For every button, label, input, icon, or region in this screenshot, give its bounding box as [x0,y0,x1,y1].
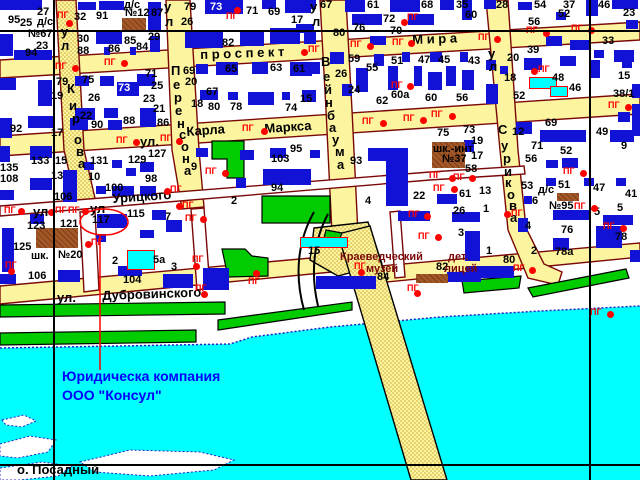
house-number-label: 2 [231,196,237,207]
house-number-label: 86 [108,44,120,55]
house-number-label: 49 [596,127,608,138]
building[interactable] [0,152,10,162]
house-number-label: 95 [8,15,20,26]
fire-hydrant-label: ПГ [571,24,583,33]
building[interactable] [632,104,640,136]
fire-hydrant-label: ПГ [242,124,254,133]
fire-hydrant-label: ПГ [407,13,419,22]
building[interactable] [248,92,274,105]
building[interactable] [126,168,136,176]
building[interactable] [58,270,80,282]
fire-hydrant-label: ПГ [453,173,465,182]
building[interactable] [546,160,558,168]
house-number-label: 5а [153,255,165,266]
fire-hydrant-label: ПГ [195,284,207,293]
fire-hydrant-label: ПГ [4,206,16,215]
building[interactable] [518,2,532,10]
fire-hydrant-dot[interactable] [66,20,73,27]
search-result-annotation: Юридическа компания ООО "Консул" [62,369,220,407]
fire-hydrant-label: ПГ [590,308,602,317]
house-number-label: 106 [28,271,46,282]
fire-hydrant-label: ПГ [205,167,217,176]
fire-hydrant-label: ПГ [431,110,443,119]
house-number-label: 68 [421,0,433,11]
building[interactable] [203,268,229,290]
building[interactable] [104,108,118,118]
house-number-label: 22 [413,191,425,202]
house-number-label: 82 [222,38,234,49]
house-number-label: 61 [367,0,379,11]
house-number-label: 13 [51,171,63,182]
house-number-label: 39 [527,45,539,56]
house-number-label: 79 [184,2,196,13]
house-number-label: 129 [128,155,146,166]
fire-hydrant-label: ПГ [408,210,420,219]
house-number-label: 121 [60,219,78,230]
house-number-label: 80 [333,28,345,39]
fire-hydrant-label: ПГ [116,136,128,145]
house-number-label: 74 [285,103,297,114]
house-number-label: 94 [271,183,283,194]
house-number-label: 26 [335,69,347,80]
fire-hydrant-dot[interactable] [420,117,427,124]
building[interactable] [282,92,290,100]
house-number-label: №12 [125,8,150,19]
house-number-label: 5 [617,203,623,214]
building[interactable] [236,178,246,188]
house-number-label: 60 [465,10,477,21]
fire-hydrant-dot[interactable] [367,43,374,50]
building[interactable] [196,148,208,157]
fire-hydrant-label: ПГ [513,264,525,273]
house-number-label: 71 [531,141,543,152]
street-label: Маркса [264,119,312,135]
fire-hydrant-dot[interactable] [176,138,183,145]
house-number-label: 15 [300,94,312,105]
house-number-label: 2 [531,246,537,257]
house-number-label: 60а [391,90,409,101]
house-number-label: №20 [58,250,83,261]
street-label: П [171,64,180,77]
fire-hydrant-dot[interactable] [588,27,595,34]
building[interactable] [586,0,598,16]
house-number-label: 72 [383,14,395,25]
street-label: р [72,112,80,125]
house-number-label: 58 [465,164,477,175]
building[interactable] [440,0,454,10]
fire-hydrant-dot[interactable] [408,40,415,47]
house-number-label: 38/1 [613,89,634,100]
house-number-label: 12 [512,127,524,138]
house-number-label: №95 [549,201,574,212]
fire-hydrant-label: ПГ [574,202,586,211]
building[interactable] [386,160,408,206]
building[interactable] [524,196,532,204]
house-number-label: 88 [77,46,89,57]
building[interactable] [446,66,456,86]
building[interactable] [108,120,122,130]
house-number-label: 108 [0,174,18,185]
house-number-label: 1 [483,204,489,215]
fire-hydrant-dot[interactable] [543,30,550,37]
building[interactable] [30,178,52,190]
fire-hydrant-label: ПГ [192,255,204,264]
street-label: п р о с п е к т [200,45,285,61]
building[interactable] [78,2,96,10]
house-number-label: 26 [88,93,100,104]
house-number-label: шк. [31,251,49,262]
house-number-label: 25 [151,81,163,92]
house-number-label: лицей [444,264,477,275]
house-number-label: 56 [456,93,468,104]
house-number-label: 103 [271,154,289,165]
house-number-label: музей [366,264,398,275]
fire-hydrant-dot[interactable] [529,267,536,274]
building[interactable] [484,0,496,9]
highlighted-building[interactable] [550,86,568,97]
school-building[interactable] [416,274,448,283]
fire-hydrant-label: ПГ [55,206,67,215]
street-label: ул. [57,291,76,304]
house-number-label: 75 [437,128,449,139]
house-number-label: 123 [27,221,45,232]
house-number-label: 52 [558,9,570,20]
fire-hydrant-label: ПГ [5,261,17,270]
fire-hydrant-dot[interactable] [591,205,598,212]
building[interactable] [616,178,626,186]
house-number-label: 65 [225,64,237,75]
house-number-label: 79 [56,77,68,88]
house-number-label: д/с [538,185,554,196]
building[interactable] [140,115,156,127]
school-building[interactable] [122,18,146,30]
building[interactable] [228,92,238,100]
house-number-label: 20 [185,77,197,88]
building[interactable] [0,0,42,10]
house-number-label: 17 [51,128,63,139]
fire-hydrant-dot[interactable] [504,211,511,218]
building[interactable] [112,160,122,168]
building[interactable] [316,276,376,289]
house-number-label: 69 [545,118,557,129]
building[interactable] [590,60,600,78]
house-number-label: 24 [348,85,360,96]
fire-hydrant-label: ПГ [308,45,320,54]
company-name-line1: Юридическа компания [62,369,220,383]
house-number-label: 32 [74,12,86,23]
fire-hydrant-dot[interactable] [121,60,128,67]
street-label: а [78,157,85,170]
fire-hydrant-dot[interactable] [261,128,268,135]
house-number-label: 30 [77,34,89,45]
building[interactable] [570,40,590,50]
fire-hydrant-dot[interactable] [531,68,538,75]
house-number-label: №67 [28,29,53,40]
street-label: а [337,158,344,171]
street-label: л [165,15,173,28]
house-number-label: 47 [593,183,605,194]
house-number-label: 23 [36,41,48,52]
house-number-label: 133 [31,156,49,167]
building[interactable] [460,52,468,62]
fire-hydrant-dot[interactable] [469,175,476,182]
house-number-label: 98 [145,174,157,185]
fire-hydrant-dot[interactable] [607,311,614,318]
building[interactable] [546,36,562,46]
fire-hydrant-label: ПГ [350,40,362,49]
fire-hydrant-label: ПГ [563,167,575,176]
house-number-label: 67 [320,0,332,11]
house-number-label: 41 [625,189,637,200]
house-number-label: 100 [105,183,123,194]
house-number-label: 28 [496,0,508,11]
fire-hydrant-label: ПГ [403,114,415,123]
house-number-label: 4 [525,221,531,232]
house-number-label: 26 [181,17,193,28]
building[interactable] [626,20,638,29]
park-area [262,196,330,223]
fire-hydrant-label: ПГ [91,238,103,247]
building[interactable] [437,194,457,204]
building[interactable] [345,0,365,12]
house-number-label: 51 [391,56,403,67]
building[interactable] [185,30,223,48]
building[interactable] [594,50,604,58]
house-number-label: 80 [208,102,220,113]
house-number-label: 19 [51,91,63,102]
house-number-label: 26 [453,206,465,217]
building[interactable] [462,70,474,90]
street-label: С [498,123,507,136]
house-number-label: 95 [290,144,302,155]
house-number-label: 104 [123,275,141,286]
building[interactable] [100,76,114,86]
map-canvas[interactable]: Юридическа компания ООО "Консул" о. Поса… [0,0,640,480]
building[interactable] [0,190,14,200]
fire-hydrant-dot[interactable] [494,36,501,43]
house-number-label: 2 [112,256,118,267]
house-number-label: 1 [486,246,492,257]
house-number-label: 70 [390,26,402,37]
house-number-label: 61 [459,189,471,200]
building[interactable] [540,130,586,142]
street-label: л [489,60,497,73]
island-label: о. Посадный [17,463,99,476]
building[interactable] [252,62,268,74]
house-number-label: 93 [350,156,362,167]
street-label: у [61,25,68,38]
building[interactable] [196,64,208,74]
street-label: л [312,15,320,28]
building[interactable] [240,150,254,160]
fire-hydrant-label: ПГ [526,26,538,35]
house-number-label: 33 [602,36,614,47]
house-number-label: 63 [270,63,282,74]
street-label: М и р а [412,31,457,46]
house-number-label: 3 [171,262,177,273]
building[interactable] [622,58,632,68]
house-number-label: 9 [621,141,627,152]
building[interactable] [390,0,420,12]
fire-hydrant-dot[interactable] [48,209,55,216]
house-number-label: 75 [82,75,94,86]
fire-hydrant-dot[interactable] [451,186,458,193]
house-number-label: 52 [560,146,572,157]
house-number-label: 91 [96,11,108,22]
house-number-label: 3 [458,228,464,239]
fire-hydrant-dot[interactable] [580,170,587,177]
park-area [0,330,196,345]
house-number-label: 55 [366,63,378,74]
building[interactable] [330,52,344,64]
street-label: Карла [186,122,225,138]
house-number-label: 23 [623,8,635,19]
fire-hydrant-label: ПГ [104,58,116,67]
house-number-label: 9 [191,162,197,173]
house-number-label: 54 [534,0,546,11]
house-number-label: 131 [90,156,108,167]
house-number-label: 73 [118,83,130,94]
house-number-label: Краеведческий [340,252,423,263]
building[interactable] [428,72,442,90]
fire-hydrant-label: ПГ [226,12,238,21]
park-area [0,302,225,317]
building[interactable] [486,84,498,104]
house-number-label: 76 [561,225,573,236]
building[interactable] [152,210,166,220]
fire-hydrant-label: ПГ [429,171,441,180]
fire-hydrant-dot[interactable] [193,263,200,270]
fire-hydrant-label: ПГ [248,277,260,286]
building[interactable] [310,62,320,74]
fire-hydrant-label: ПГ [511,209,523,218]
fire-hydrant-dot[interactable] [449,113,456,120]
fire-hydrant-dot[interactable] [625,104,632,111]
house-number-label: 84 [136,42,148,53]
house-number-label: 17 [291,15,303,26]
house-number-label: 67 [206,87,218,98]
house-number-label: 87 [151,8,163,19]
building[interactable] [310,150,320,158]
house-number-label: д/с [37,17,53,28]
house-number-label: 15 [618,71,630,82]
fire-hydrant-label: ПГ [160,134,172,143]
fire-hydrant-dot[interactable] [72,65,79,72]
fire-hydrant-dot[interactable] [380,120,387,127]
house-number-label: 15 [55,156,67,167]
fire-hydrant-dot[interactable] [435,234,442,241]
fire-hydrant-label: ПГ [433,184,445,193]
fire-hydrant-label: ПГ [538,65,550,74]
house-number-label: 46 [598,0,610,11]
fire-hydrant-label: ПГ [57,11,69,20]
house-number-label: 94 [25,48,37,59]
fire-hydrant-dot[interactable] [424,213,431,220]
house-number-label: 76 [353,23,365,34]
building[interactable] [140,230,154,238]
house-number-label: 90 [91,120,103,131]
house-number-label: 46 [569,83,581,94]
house-number-label: 62 [376,96,388,107]
fire-hydrant-dot[interactable] [133,139,140,146]
fire-hydrant-dot[interactable] [407,83,414,90]
building[interactable] [560,56,576,66]
fire-hydrant-label: ПГ [608,101,620,110]
building[interactable] [99,1,124,10]
fire-hydrant-label: ПГ [407,284,419,293]
building[interactable] [270,28,300,44]
street-label: ул. [140,135,159,148]
fire-hydrant-label: ПГ [478,33,490,42]
house-number-label: 10 [88,172,100,183]
house-number-label: 78а [555,247,573,258]
fire-hydrant-dot[interactable] [200,216,207,223]
building[interactable] [38,80,52,106]
house-number-label: 20 [507,53,519,64]
house-number-label: 48 [552,73,564,84]
fire-hydrant-dot[interactable] [82,208,89,215]
house-number-label: 127 [148,149,166,160]
fire-hydrant-label: ПГ [185,214,197,223]
street-label: Дубровинского [102,286,201,302]
house-number-label: 86 [157,118,169,129]
building[interactable] [630,250,640,262]
building[interactable] [414,66,422,86]
house-number-label: 53 [521,181,533,192]
fire-hydrant-dot[interactable] [301,49,308,56]
house-number-label: 73 [210,2,222,13]
fire-hydrant-label: ПГ [391,81,403,90]
building[interactable] [0,78,16,90]
street-label: у [310,0,317,13]
house-number-label: 60 [425,93,437,104]
house-number-label: 18 [191,99,203,110]
house-number-label: 21 [153,104,165,115]
house-number-label: 85 [124,36,136,47]
house-number-label: 51 [558,180,570,191]
park-area [218,302,352,330]
house-number-label: 115 [127,209,145,220]
fire-hydrant-label: ПГ [392,38,404,47]
fire-hydrant-dot[interactable] [18,208,25,215]
house-number-label: 47 [418,55,430,66]
house-number-label: 43 [468,56,480,67]
fire-hydrant-label: ПГ [362,117,374,126]
building[interactable] [618,112,630,122]
fire-hydrant-label: ПГ [354,262,366,271]
street-label: л [61,39,69,52]
house-number-label: 71 [246,6,258,17]
house-number-label: 92 [10,124,22,135]
house-number-label: 7 [165,212,171,223]
house-number-label: 18 [504,73,516,84]
building[interactable] [0,34,13,56]
building[interactable] [0,274,16,284]
fire-hydrant-label: ПГ [68,206,80,215]
house-number-label: 78 [230,102,242,113]
house-number-label: дет. [448,252,468,263]
fire-hydrant-dot[interactable] [222,170,229,177]
house-number-label: 45 [438,55,450,66]
house-number-label: 13 [479,186,491,197]
building[interactable] [304,30,316,44]
fire-hydrant-label: ПГ [603,222,615,231]
fire-hydrant-dot[interactable] [620,225,627,232]
house-number-label: 78 [615,232,627,243]
highlighted-building[interactable] [127,250,155,270]
house-number-label: 117 [92,215,110,226]
house-number-label: 15 [308,246,320,257]
